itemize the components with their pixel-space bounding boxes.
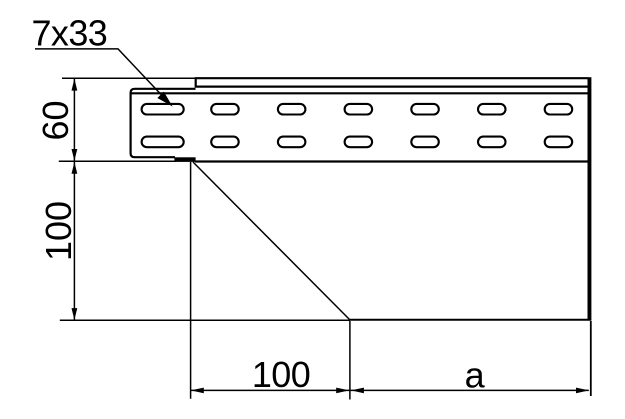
svg-text:100: 100 xyxy=(252,354,310,395)
svg-text:7x33: 7x33 xyxy=(32,13,108,54)
svg-text:100: 100 xyxy=(38,201,79,261)
svg-text:60: 60 xyxy=(35,100,76,140)
svg-text:a: a xyxy=(465,354,486,395)
